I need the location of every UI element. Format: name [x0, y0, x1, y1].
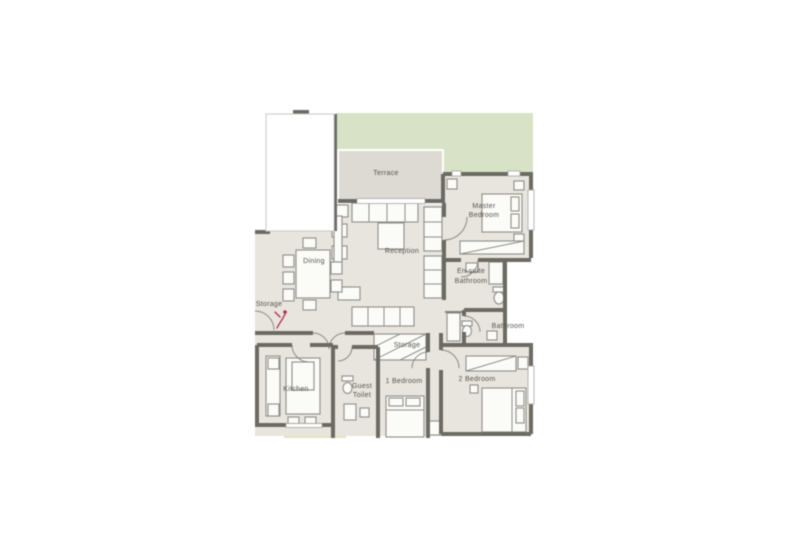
bathroom-label: Bathroom: [492, 323, 525, 330]
kitchen-label: Kitchen: [283, 386, 308, 393]
terrace-label: Terrace: [373, 170, 398, 177]
reception-label: Reception: [385, 248, 419, 255]
dining-label: Dining: [303, 258, 325, 265]
ensuite-label-line2: Bathroom: [455, 278, 488, 285]
page-canvas: Terrace Master Bedroom Reception Dining …: [0, 0, 800, 553]
master-bedroom-label-line2: Bedroom: [469, 212, 500, 219]
blank-overlay: [266, 114, 334, 231]
guest-toilet-label-line2: Toilet: [353, 392, 371, 399]
bedroom2-label: 2 Bedroom: [459, 376, 496, 383]
bedroom1-label: 1 Bedroom: [386, 378, 423, 385]
ensuite-label-line1: En-suite: [457, 268, 485, 275]
master-bedroom-label-line1: Master: [472, 203, 496, 210]
storage-center-label: Storage: [394, 342, 421, 349]
terrace-slider-window: [357, 199, 425, 204]
floorplan-drawing: Terrace Master Bedroom Reception Dining …: [255, 108, 535, 440]
storage-left-label: Storage: [256, 301, 283, 308]
guest-toilet-label-line1: Guest: [352, 383, 372, 390]
floorplan-image: Terrace Master Bedroom Reception Dining …: [255, 108, 535, 440]
